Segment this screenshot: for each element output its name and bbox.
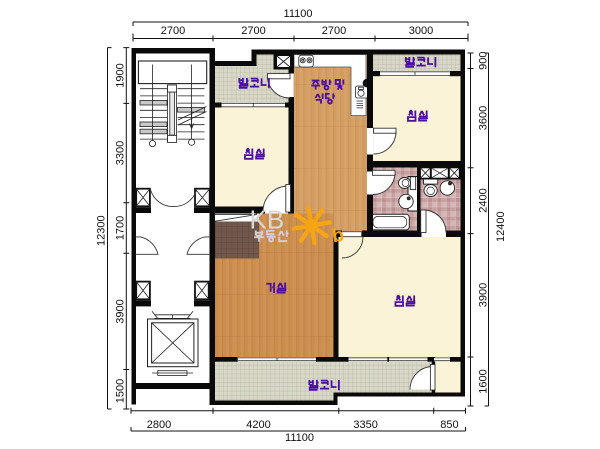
svg-text:3000: 3000 [409,25,433,37]
svg-text:2700: 2700 [322,25,346,37]
svg-text:12300: 12300 [96,215,108,246]
svg-text:850: 850 [440,419,458,431]
svg-text:3900: 3900 [478,283,490,307]
svg-text:1700: 1700 [115,216,127,240]
svg-text:3300: 3300 [115,141,127,165]
svg-text:1500: 1500 [115,379,127,403]
svg-text:3600: 3600 [478,106,490,130]
svg-text:11100: 11100 [284,8,313,20]
svg-text:2800: 2800 [147,419,171,431]
svg-text:1600: 1600 [478,369,490,393]
svg-text:4200: 4200 [246,419,270,431]
svg-text:3350: 3350 [353,419,377,431]
svg-text:2700: 2700 [161,25,185,37]
svg-text:2400: 2400 [478,188,490,212]
svg-text:11100: 11100 [285,432,314,444]
svg-text:3900: 3900 [115,299,127,323]
svg-text:900: 900 [478,52,490,70]
svg-text:12400: 12400 [495,211,507,242]
svg-text:2700: 2700 [241,25,265,37]
svg-text:1900: 1900 [115,63,127,87]
